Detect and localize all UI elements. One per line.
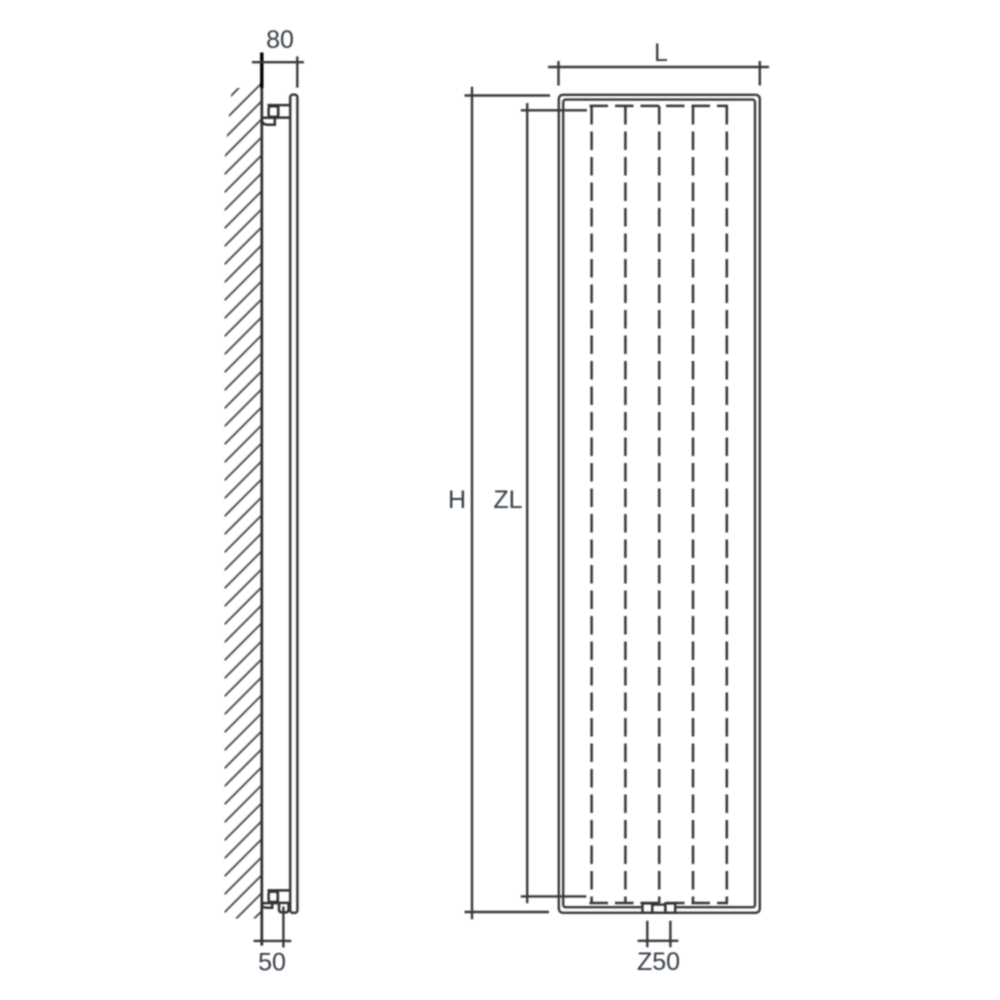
svg-text:H: H [448, 486, 466, 514]
svg-text:50: 50 [258, 949, 286, 977]
svg-text:Z50: Z50 [637, 948, 680, 976]
svg-text:L: L [654, 39, 668, 67]
svg-text:80: 80 [266, 26, 294, 54]
svg-text:ZL: ZL [493, 486, 522, 514]
